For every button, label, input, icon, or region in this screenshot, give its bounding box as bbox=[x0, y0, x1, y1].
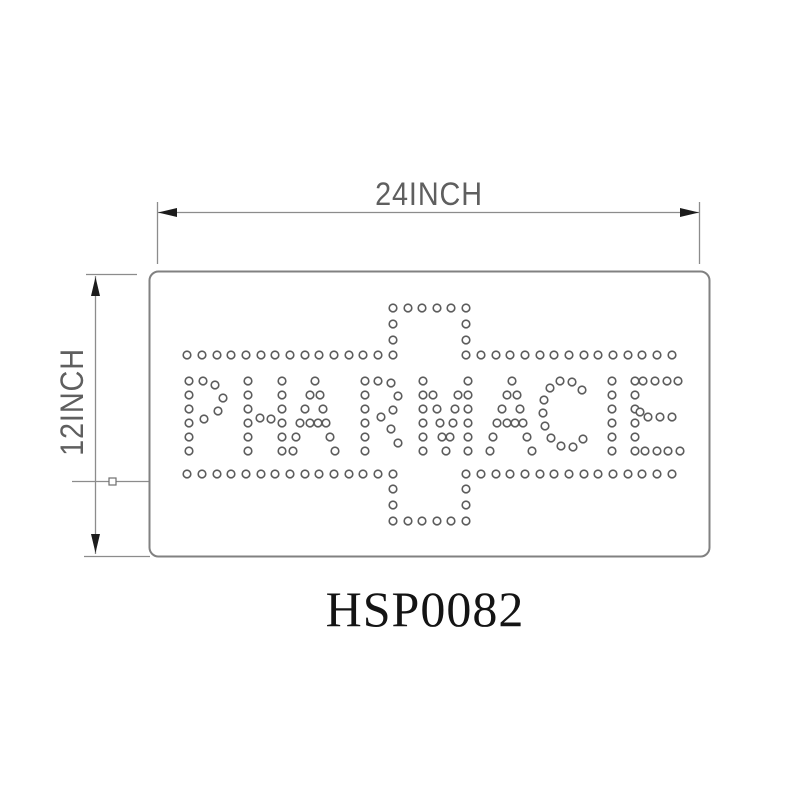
led-dot bbox=[361, 433, 369, 441]
led-dot-matrix bbox=[183, 304, 684, 525]
led-dot bbox=[278, 405, 286, 413]
led-dot bbox=[345, 470, 353, 478]
led-dot bbox=[244, 433, 252, 441]
led-dot bbox=[492, 351, 500, 359]
led-dot bbox=[256, 414, 264, 422]
led-dot bbox=[311, 377, 319, 385]
led-dot bbox=[198, 470, 206, 478]
led-dot bbox=[244, 405, 252, 413]
led-dot bbox=[557, 442, 565, 450]
led-dot bbox=[462, 470, 470, 478]
led-dot bbox=[183, 351, 191, 359]
led-dot bbox=[292, 433, 300, 441]
led-dot bbox=[257, 351, 265, 359]
led-dot bbox=[506, 351, 514, 359]
led-dot bbox=[301, 405, 309, 413]
led-dot bbox=[664, 447, 672, 455]
led-dot bbox=[330, 351, 338, 359]
led-dot bbox=[663, 377, 671, 385]
led-dot bbox=[227, 470, 235, 478]
led-dot bbox=[540, 396, 548, 404]
led-dot bbox=[389, 336, 397, 344]
led-dot bbox=[608, 447, 616, 455]
led-dot bbox=[608, 433, 616, 441]
led-dot bbox=[389, 406, 397, 414]
led-dot bbox=[436, 419, 444, 427]
led-dot bbox=[528, 447, 536, 455]
part-number-label: HSP0082 bbox=[275, 583, 575, 635]
led-dot bbox=[579, 435, 587, 443]
led-dot bbox=[185, 391, 193, 399]
led-dot bbox=[521, 470, 529, 478]
led-dot bbox=[345, 351, 353, 359]
led-dot bbox=[314, 419, 322, 427]
led-dot bbox=[267, 415, 275, 423]
led-dot bbox=[306, 391, 314, 399]
led-dot bbox=[359, 470, 367, 478]
led-dot bbox=[594, 470, 602, 478]
led-dot bbox=[389, 320, 397, 328]
led-dot bbox=[389, 351, 397, 359]
led-dot bbox=[631, 419, 639, 427]
led-dot bbox=[636, 408, 644, 416]
led-dot bbox=[668, 470, 676, 478]
led-dot bbox=[361, 419, 369, 427]
led-dot bbox=[609, 351, 617, 359]
led-dot bbox=[387, 379, 395, 387]
led-dot bbox=[185, 447, 193, 455]
led-dot bbox=[631, 391, 639, 399]
led-dot bbox=[389, 501, 397, 509]
led-dot bbox=[394, 439, 402, 447]
led-dot bbox=[536, 351, 544, 359]
led-dot bbox=[419, 405, 427, 413]
led-dot bbox=[506, 470, 514, 478]
led-dot bbox=[638, 470, 646, 478]
led-dot bbox=[656, 413, 664, 421]
led-dot bbox=[508, 377, 516, 385]
width-dimension-label: 24INCH bbox=[339, 178, 519, 210]
led-dot bbox=[418, 517, 426, 525]
led-dot bbox=[492, 470, 500, 478]
led-dot bbox=[316, 391, 324, 399]
led-dot bbox=[464, 447, 472, 455]
led-dot bbox=[668, 413, 676, 421]
led-dot bbox=[433, 517, 441, 525]
led-dot bbox=[550, 351, 558, 359]
led-dot bbox=[580, 470, 588, 478]
led-dot bbox=[361, 447, 369, 455]
led-dot bbox=[556, 377, 564, 385]
led-dot bbox=[359, 351, 367, 359]
led-dot bbox=[296, 419, 304, 427]
led-dot bbox=[568, 378, 576, 386]
led-dot bbox=[185, 377, 193, 385]
led-dot bbox=[315, 470, 323, 478]
dimension-arrow-up-icon bbox=[91, 277, 100, 296]
led-dot bbox=[503, 391, 511, 399]
led-dot bbox=[361, 405, 369, 413]
led-dot bbox=[374, 377, 382, 385]
led-dot bbox=[199, 377, 207, 385]
led-dot bbox=[516, 405, 524, 413]
led-dot bbox=[464, 419, 472, 427]
led-dot bbox=[462, 351, 470, 359]
led-dot bbox=[278, 447, 286, 455]
led-dot bbox=[389, 470, 397, 478]
led-dot bbox=[330, 470, 338, 478]
led-dot bbox=[404, 517, 412, 525]
led-dot bbox=[464, 433, 472, 441]
led-dot bbox=[447, 517, 455, 525]
led-dot bbox=[242, 351, 250, 359]
led-dot bbox=[198, 351, 206, 359]
led-dot bbox=[676, 447, 684, 455]
led-dot bbox=[219, 394, 227, 402]
led-dot bbox=[539, 409, 547, 417]
led-dot bbox=[185, 433, 193, 441]
led-dot bbox=[213, 351, 221, 359]
led-dot bbox=[244, 419, 252, 427]
led-dot bbox=[631, 377, 639, 385]
led-dot bbox=[462, 336, 470, 344]
led-dot bbox=[624, 351, 632, 359]
led-dot bbox=[419, 391, 427, 399]
led-dot bbox=[668, 351, 676, 359]
led-dot bbox=[608, 391, 616, 399]
led-dot bbox=[438, 433, 446, 441]
led-dot bbox=[374, 351, 382, 359]
led-dot bbox=[464, 377, 472, 385]
dimension-arrow-down-icon bbox=[91, 534, 100, 553]
led-dot bbox=[644, 413, 652, 421]
led-dot bbox=[462, 304, 470, 312]
dimension-arrow-right-icon bbox=[680, 208, 699, 217]
led-dot bbox=[404, 304, 412, 312]
led-dot bbox=[477, 470, 485, 478]
led-dot bbox=[433, 304, 441, 312]
led-dot bbox=[301, 470, 309, 478]
led-dot bbox=[394, 392, 402, 400]
led-dot bbox=[433, 405, 441, 413]
led-dot bbox=[211, 381, 219, 389]
led-dot bbox=[489, 433, 497, 441]
led-dot bbox=[550, 470, 558, 478]
led-dot bbox=[278, 391, 286, 399]
led-dot bbox=[594, 351, 602, 359]
led-dot bbox=[674, 377, 682, 385]
led-dot bbox=[464, 405, 472, 413]
led-dot bbox=[200, 415, 208, 423]
led-dot bbox=[419, 447, 427, 455]
led-dot bbox=[638, 351, 646, 359]
led-dot bbox=[419, 419, 427, 427]
led-dot bbox=[286, 351, 294, 359]
led-dot bbox=[419, 377, 427, 385]
led-dot bbox=[493, 419, 501, 427]
led-dot bbox=[523, 433, 531, 441]
led-dot bbox=[451, 405, 459, 413]
led-dot bbox=[389, 485, 397, 493]
led-dot bbox=[651, 377, 659, 385]
led-dot bbox=[608, 377, 616, 385]
led-dot bbox=[289, 447, 297, 455]
led-dot bbox=[521, 351, 529, 359]
led-dot bbox=[477, 351, 485, 359]
led-dot bbox=[446, 433, 454, 441]
led-dot bbox=[462, 517, 470, 525]
led-dot bbox=[546, 384, 554, 392]
led-dot bbox=[214, 407, 222, 415]
led-dot bbox=[326, 433, 334, 441]
led-dot bbox=[447, 304, 455, 312]
led-dot bbox=[454, 391, 462, 399]
led-dot bbox=[511, 419, 519, 427]
led-dot bbox=[271, 351, 279, 359]
led-dot bbox=[569, 443, 577, 451]
led-dot bbox=[653, 447, 661, 455]
led-dot bbox=[361, 377, 369, 385]
drawing-canvas bbox=[0, 0, 800, 800]
led-dot bbox=[513, 391, 521, 399]
datum-square bbox=[109, 478, 116, 485]
led-dot bbox=[331, 447, 339, 455]
led-dot bbox=[389, 517, 397, 525]
led-dot bbox=[519, 419, 527, 427]
led-dot bbox=[565, 351, 573, 359]
led-dot bbox=[278, 433, 286, 441]
led-dot bbox=[185, 419, 193, 427]
led-dot bbox=[641, 447, 649, 455]
led-dot bbox=[419, 433, 427, 441]
led-dot bbox=[185, 405, 193, 413]
led-dot bbox=[486, 447, 494, 455]
led-dot bbox=[464, 391, 472, 399]
led-dot bbox=[580, 351, 588, 359]
height-dimension bbox=[84, 275, 150, 557]
led-dot bbox=[244, 377, 252, 385]
sign-outline bbox=[150, 272, 710, 557]
led-dot bbox=[631, 447, 639, 455]
led-dot bbox=[271, 470, 279, 478]
led-dot bbox=[498, 405, 506, 413]
led-dot bbox=[653, 470, 661, 478]
led-dot bbox=[503, 419, 511, 427]
led-dot bbox=[319, 405, 327, 413]
led-dot bbox=[322, 419, 330, 427]
led-dot bbox=[608, 419, 616, 427]
led-dot bbox=[609, 470, 617, 478]
led-dot bbox=[541, 422, 549, 430]
led-dot bbox=[387, 425, 395, 433]
led-dot bbox=[578, 386, 586, 394]
led-dot bbox=[429, 391, 437, 399]
led-dot bbox=[315, 351, 323, 359]
led-dot bbox=[418, 304, 426, 312]
led-dot bbox=[462, 320, 470, 328]
led-dot bbox=[442, 447, 450, 455]
led-dot bbox=[306, 419, 314, 427]
led-dot bbox=[374, 470, 382, 478]
led-dot bbox=[462, 501, 470, 509]
led-dot bbox=[301, 351, 309, 359]
led-dot bbox=[624, 470, 632, 478]
led-dot bbox=[242, 470, 250, 478]
technical-drawing-page: 24INCH 12INCH HSP0082 bbox=[0, 0, 800, 800]
dimension-arrow-left-icon bbox=[158, 208, 177, 217]
led-dot bbox=[183, 470, 191, 478]
led-dot bbox=[565, 470, 573, 478]
led-dot bbox=[244, 391, 252, 399]
led-dot bbox=[227, 351, 235, 359]
led-dot bbox=[377, 413, 385, 421]
led-dot bbox=[547, 434, 555, 442]
height-dimension-label: 12INCH bbox=[56, 312, 90, 492]
led-dot bbox=[536, 470, 544, 478]
led-dot bbox=[653, 351, 661, 359]
led-dot bbox=[639, 377, 647, 385]
led-dot bbox=[278, 419, 286, 427]
led-dot bbox=[361, 391, 369, 399]
led-dot bbox=[631, 433, 639, 441]
led-dot bbox=[244, 447, 252, 455]
led-dot bbox=[286, 470, 294, 478]
led-dot bbox=[278, 377, 286, 385]
led-dot bbox=[257, 470, 265, 478]
led-dot bbox=[449, 419, 457, 427]
led-dot bbox=[389, 304, 397, 312]
led-dot bbox=[213, 470, 221, 478]
led-dot bbox=[608, 405, 616, 413]
led-dot bbox=[462, 485, 470, 493]
